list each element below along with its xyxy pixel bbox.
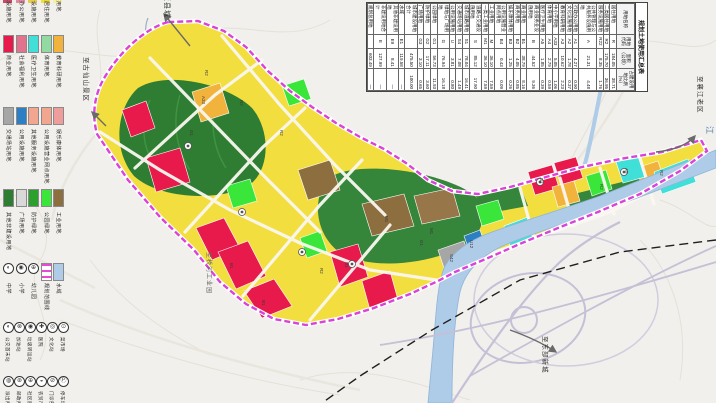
legend-symbol: ◍ (3, 376, 14, 387)
table-cell: 城市建设用地合计 (405, 4, 417, 35)
legend-label-text: 商业用地 (4, 55, 11, 77)
table-cell: 9.36 (527, 68, 539, 90)
legend-label-text: 其他服务设施用地 (29, 129, 36, 173)
table-cell: 广场用地 (417, 4, 424, 35)
landuse-summary-table: 规划土地使用汇总表 用地名称用地代码面积（公顷）占建设用地比例（%） 居住用地R… (366, 2, 648, 92)
table-cell: 1.49 (456, 68, 463, 90)
table-header-cell: 用地名称 (617, 4, 635, 35)
parcel-code: R2 (279, 130, 284, 136)
table-cell: E9 (386, 35, 398, 48)
legend-label-text: 公交首末站 (4, 337, 11, 362)
table-row: 水域E1119.58— (398, 4, 405, 91)
table-cell: 44.52 (527, 48, 539, 68)
table-cell: 公用设施营业网点用地 (495, 4, 507, 35)
table-cell: 0.09 (495, 68, 507, 90)
table-cell: 中小学用地 (552, 4, 559, 35)
table-cell: 7.08 (456, 48, 463, 68)
legend-swatch (41, 35, 52, 53)
legend-label-text: 其他非建设用地 (4, 212, 11, 251)
table-cell: 4.48 (579, 68, 597, 90)
table-cell: M (488, 35, 495, 48)
legend: 文化设施用地行政办公用地服务设施用地二类居住用地居住用地商业用地社会福利用地医疗… (2, 0, 72, 403)
table-cell: 184.05 (610, 48, 617, 68)
table-cell: A5 (539, 35, 546, 48)
table-row: 居住用地R184.0538.71 (610, 4, 617, 91)
legend-swatch (53, 189, 64, 207)
legend-swatch (28, 35, 39, 53)
table-cell: 交通场站用地 (456, 4, 463, 35)
parcel-code: A5 (624, 168, 629, 174)
parcel-code: R2 (204, 70, 209, 76)
table-cell: 水域 (398, 4, 405, 35)
table-cell: 公用设施用地 (449, 4, 456, 35)
table-cell: — (398, 68, 405, 90)
table-cell: 0.39 (539, 68, 546, 90)
table-cell: B4 (495, 35, 507, 48)
table-title: 规划土地使用汇总表 (635, 3, 647, 91)
legend-symbol: ⊙ (58, 322, 69, 333)
table-cell: 10.62 (559, 48, 566, 68)
table-cell: 38.71 (610, 68, 617, 90)
table-cell: 36.10 (488, 48, 495, 68)
table-row: 城市道路用地S178.0416.41 (463, 4, 470, 91)
legend-label-text: 二类居住用地 (42, 0, 49, 23)
table-row: 商务用地B24.050.85 (514, 4, 521, 91)
edge-label-river: 江 (704, 126, 715, 135)
table-cell: 规划总用地 (367, 4, 374, 35)
table-cell: R (610, 35, 617, 48)
table-cell: 1.76 (597, 68, 604, 90)
table-cell: 0.80 (449, 68, 456, 90)
table-cell: 76.94 (437, 48, 449, 68)
table-row: 文化设施用地A21.780.37 (566, 4, 573, 91)
legend-label-text: 居住用地 (54, 0, 61, 12)
legend-swatch (28, 107, 39, 125)
legend-label-text: 派出所 (4, 391, 11, 403)
table-cell: 0.43 (495, 48, 507, 68)
legend-label-text: 小学 (17, 283, 24, 294)
table-cell: 2.79 (546, 48, 553, 68)
table-cell: 7.59 (482, 68, 489, 90)
table-row: 医疗卫生用地A51.850.39 (539, 4, 546, 91)
table-header-cell: 面积（公顷） (617, 48, 635, 68)
table-cell: 其他非建设用地 (386, 4, 398, 35)
table-cell: 21.31 (579, 48, 597, 68)
table-cell: A (579, 35, 597, 48)
table-cell: A4 (546, 35, 553, 48)
table-cell: B (527, 35, 539, 48)
legend-label-text: 广场用地 (17, 212, 24, 234)
table-cell: 0.90 (572, 68, 579, 90)
table-cell: 道路与交通设施用地 (469, 4, 481, 35)
table-row: 交通场站用地S47.081.49 (456, 4, 463, 91)
legend-symbol: ◎ (47, 322, 58, 333)
legend-label-text: 交通场站用地 (4, 129, 11, 162)
table-row: 一类工业用地M136.107.59 (482, 4, 489, 91)
legend-label-text: 水域 (54, 283, 61, 294)
table-cell: A2 (566, 35, 573, 48)
table-cell: 非建设用地合计 (374, 4, 386, 35)
parcel-code: B1 (261, 300, 266, 306)
parcel-code: R2 (319, 268, 324, 274)
table-cell: S (469, 35, 481, 48)
legend-swatch (41, 107, 52, 125)
table-cell: U (449, 35, 456, 48)
legend-symbol: ◐ (3, 263, 14, 274)
table-cell: R2 (603, 35, 610, 48)
legend-swatch (28, 189, 39, 207)
table-row: 公共管理与公共服务设施用地A21.314.48 (579, 4, 597, 91)
table-cell: 36.95 (603, 68, 610, 90)
parcel-code: G1 (189, 130, 194, 137)
legend-symbol: ⊛ (14, 376, 25, 387)
table-cell: 8.16 (520, 68, 527, 90)
edge-label-to-xiangjiang-old: 至襄江老区 (696, 76, 706, 114)
legend-swatch (53, 35, 64, 53)
table-row: 非建设用地合计E127.99— (374, 4, 386, 91)
legend-symbol: ◐ (3, 322, 14, 333)
table-row: 规划总用地603.49— (367, 4, 374, 91)
legend-label-text: 农贸市场 (37, 391, 44, 403)
table-cell: 17.11 (424, 48, 431, 68)
table-cell: 100.00 (405, 68, 417, 90)
table-cell: 17.90 (469, 68, 481, 90)
legend-swatch (41, 189, 52, 207)
legend-label-text: 教育科研用地 (54, 55, 61, 88)
table-cell: 公园绿地 (431, 4, 438, 35)
table-cell: S1 (463, 35, 470, 48)
table-cell: 127.99 (374, 48, 386, 68)
parcel-code: B1 (229, 263, 234, 269)
table-cell: 3.10 (417, 48, 424, 68)
table-cell: E1 (398, 35, 405, 48)
parcel-code: B1 (344, 262, 349, 268)
legend-swatch (16, 35, 27, 53)
table-cell: 商业服务业设施用地 (527, 4, 539, 35)
legend-swatch (16, 189, 27, 207)
table-cell: — (386, 68, 398, 90)
parcel-code: A33 (201, 96, 206, 105)
legend-label-text: 防护绿地 (29, 212, 36, 234)
legend-boundary-swatch (41, 263, 52, 281)
table-cell: 4.27 (572, 48, 579, 68)
legend-label-text: 公用设施用地 (17, 129, 24, 162)
table-cell: 16.41 (463, 68, 470, 90)
table-row: 公用设施用地U3.810.80 (449, 4, 456, 91)
table-cell: 11.93 (431, 68, 438, 90)
table-cell: 4.05 (514, 48, 521, 68)
table-cell: 行政办公用地 (572, 4, 579, 35)
table-cell: 商业用地 (520, 4, 527, 35)
legend-symbol: ⊕ (25, 376, 36, 387)
table-cell: 0.85 (514, 68, 521, 90)
table-row: 娱乐康体用地B31.250.26 (507, 4, 514, 91)
legend-symbol: ◉ (25, 322, 36, 333)
table-row: 广场用地G33.100.65 (417, 4, 424, 91)
table-cell: 3.81 (449, 48, 456, 68)
legend-symbol: ✚ (36, 322, 47, 333)
table-cell: R22 (597, 35, 604, 48)
table-cell: G1 (431, 35, 438, 48)
table-cell: 教育科研用地 (559, 4, 566, 35)
table-cell: 5.05 (552, 48, 559, 68)
table-cell: 8.41 (386, 48, 398, 68)
legend-label-text: 加油站 (15, 337, 22, 352)
table-cell: 38.79 (520, 48, 527, 68)
legend-label-text: 医疗卫生用地 (29, 55, 36, 88)
table-cell: 0.37 (566, 68, 573, 90)
table-cell: 工业用地 (488, 4, 495, 35)
legend-symbol: ◉ (16, 263, 27, 274)
table-cell: 36.10 (482, 48, 489, 68)
table-row: 服务设施用地R228.351.76 (597, 4, 604, 91)
table-cell: — (374, 68, 386, 90)
legend-label-text: 停车场 (59, 391, 66, 403)
table-cell: 文化设施用地 (566, 4, 573, 35)
legend-label-text: 医院 (37, 337, 44, 347)
table-cell: G (437, 35, 449, 48)
parcel-code: B1 (539, 178, 544, 184)
table-cell: 475.50 (405, 48, 417, 68)
legend-swatch (3, 189, 14, 207)
table-row: 城市建设用地合计475.50100.00 (405, 4, 417, 91)
table-row: 行政办公用地A14.270.90 (572, 4, 579, 91)
table-cell: 0.65 (417, 68, 424, 90)
table-cell: 商务用地 (514, 4, 521, 35)
table-cell: 0.59 (546, 68, 553, 90)
legend-label-text: 体育用地 (42, 55, 49, 77)
table-row: 公用设施营业网点用地B40.430.09 (495, 4, 507, 91)
table-cell: 防护绿地 (424, 4, 431, 35)
legend-symbol: ⊘ (47, 376, 58, 387)
legend-label-text: 文化站 (48, 337, 55, 352)
table-cell: 175.70 (603, 48, 610, 68)
parcel-code: S42 (449, 254, 454, 263)
table-header-cell: 用地代码 (617, 35, 635, 48)
table-cell: 绿地与广场用地 (437, 4, 449, 35)
legend-label-text: 公园绿地 (42, 212, 49, 234)
table-cell (405, 35, 417, 48)
table-cell: 体育用地 (546, 4, 553, 35)
parcel-code: U12 (469, 240, 474, 249)
legend-swatch (3, 107, 14, 125)
legend-label-text: 幼儿园 (29, 283, 36, 300)
legend-label-text: 邮政所 (15, 391, 22, 403)
table-cell: M1 (482, 35, 489, 48)
table-cell: 城市道路用地 (463, 4, 470, 35)
table-row: 教育科研用地A310.622.23 (559, 4, 566, 91)
legend-label-text: 娱乐康体用地 (54, 129, 61, 162)
parcel-code: M1 (429, 228, 434, 235)
legend-swatch (16, 107, 27, 125)
table-row: 二类居住用地R2175.7036.95 (603, 4, 610, 91)
legend-label-text: 中学 (4, 283, 11, 294)
table-cell: 娱乐康体用地 (507, 4, 514, 35)
legend-label-text: 社区服务站 (26, 391, 33, 403)
legend-water-swatch (53, 263, 64, 281)
table-cell: B1 (520, 35, 527, 48)
table-row: 商业服务业设施用地B44.529.36 (527, 4, 539, 91)
table-cell: 服务设施用地 (597, 4, 604, 35)
table-cell: 二类居住用地 (603, 4, 610, 35)
table-cell: A33 (552, 35, 559, 48)
table-row: 体育用地A42.790.59 (546, 4, 553, 91)
table-cell: 85.12 (469, 48, 481, 68)
table-cell: 居住用地 (610, 4, 617, 35)
table-row: 道路与交通设施用地S85.1217.90 (469, 4, 481, 91)
legend-swatch (53, 107, 64, 125)
legend-label-text: 垃圾转运站 (26, 337, 33, 362)
table-cell: 7.59 (488, 68, 495, 90)
legend-label-text: 工业用地 (54, 212, 61, 234)
table-cell: G2 (424, 35, 431, 48)
parcel-code: M1 (384, 216, 389, 223)
legend-symbol: ⊗ (14, 322, 25, 333)
legend-label-text: 菜市场 (59, 337, 66, 352)
legend-symbol: ⊕ (28, 263, 39, 274)
table-grid: 用地名称用地代码面积（公顷）占建设用地比例（%） 居住用地R184.0538.7… (367, 3, 635, 91)
table-row: 商业用地B138.798.16 (520, 4, 527, 91)
edge-label-to-county: 至县城 (162, 0, 172, 18)
table-row: 公园绿地G156.7311.93 (431, 4, 438, 91)
table-cell: 1.06 (552, 68, 559, 90)
legend-label-text: 门诊部 (48, 391, 55, 403)
table-cell: B2 (514, 35, 521, 48)
table-row: 防护绿地G217.113.60 (424, 4, 431, 91)
table-cell: E (374, 35, 386, 48)
legend-label-text: 规划范围线 (42, 283, 49, 311)
table-cell: 119.58 (398, 48, 405, 68)
table-cell: A3 (559, 35, 566, 48)
legend-label-text: 行政办公用地 (17, 0, 24, 23)
table-cell: A1 (572, 35, 579, 48)
legend-symbol: ◒ (36, 376, 47, 387)
parcel-code: R2 (599, 184, 604, 190)
table-row: 中小学用地A335.051.06 (552, 4, 559, 91)
table-header-cell: 占建设用地比例（%） (617, 68, 635, 90)
table-cell: 56.73 (431, 48, 438, 68)
table-cell: 1.78 (566, 48, 573, 68)
table-cell: 1.25 (507, 48, 514, 68)
table-cell: 2.23 (559, 68, 566, 90)
parcel-code: R2 (239, 100, 244, 106)
table-cell: B3 (507, 35, 514, 48)
table-cell: G3 (417, 35, 424, 48)
planning-map-sheet: R2R2R2A33B1B1M1M1G1R2B1A5R2G1S42R2U12B1 … (0, 0, 716, 403)
table-cell (367, 35, 374, 48)
table-cell: S4 (456, 35, 463, 48)
legend-label-text: 社会福利用地 (17, 55, 24, 88)
edge-label-to-qiaohe-industrial: 至桥河工业园 (205, 252, 214, 294)
table-row: 其他非建设用地E98.41— (386, 4, 398, 91)
legend-label-text: 文化设施用地 (4, 0, 11, 23)
table-cell: 8.35 (597, 48, 604, 68)
table-cell: 3.60 (424, 68, 431, 90)
table-cell: 一类工业用地 (482, 4, 489, 35)
table-cell: 0.26 (507, 68, 514, 90)
legend-swatch (3, 35, 14, 53)
table-cell: 603.49 (367, 48, 374, 68)
legend-label-text: 公用设施营业网点用地 (42, 129, 49, 184)
table-row: 绿地与广场用地G76.9416.18 (437, 4, 449, 91)
table-cell: 16.18 (437, 68, 449, 90)
legend-symbol: Ⓟ (58, 376, 69, 387)
parcel-code: R2 (659, 170, 664, 176)
legend-label-text: 服务设施用地 (29, 0, 36, 23)
table-cell: 78.04 (463, 48, 470, 68)
parcel-code: G1 (419, 240, 424, 247)
edge-label-to-east-newtown: 至东部新城 (541, 336, 551, 374)
table-cell: 公共管理与公共服务设施用地 (579, 4, 597, 35)
table-cell: 1.85 (539, 48, 546, 68)
table-cell: 医疗卫生用地 (539, 4, 546, 35)
table-cell: — (367, 68, 374, 90)
table-row: 工业用地M36.107.59 (488, 4, 495, 91)
edge-label-to-guxianshan: 至古仙山景区 (82, 57, 92, 102)
